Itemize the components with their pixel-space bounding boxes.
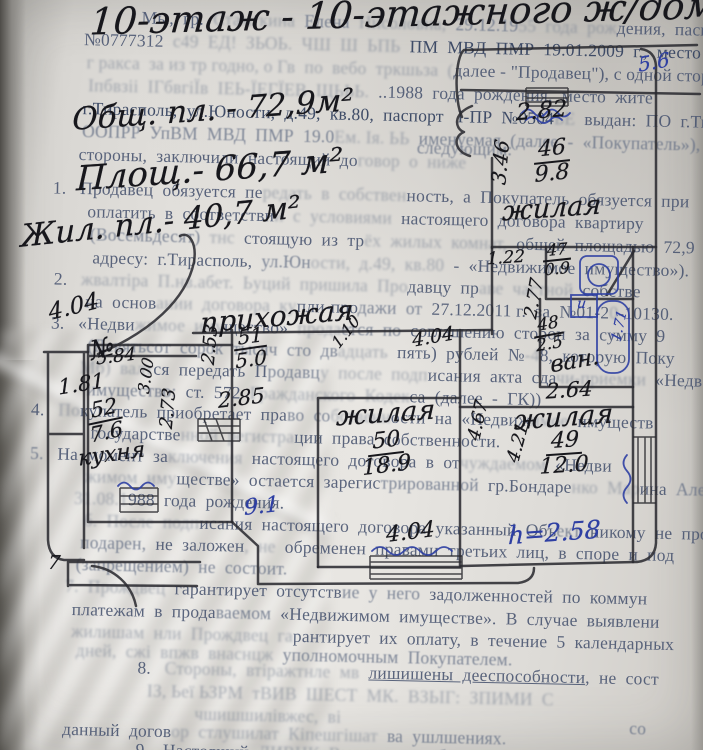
handwritten-annotation: прихожая [200,293,354,340]
handwritten-annotation: Общ. пл. - 72,9м² [72,82,355,138]
handwritten-annotation: 10-этаж - 10-этажного ж/дома [88,0,703,44]
document-photo: Мы, гр. Стамгкина Елена Нисоловна, 29.12… [0,0,703,750]
handwritten-annotation: Жил. пл.- 40,7 м² [21,189,301,255]
handwritten-annotation: Площ.- 66,7 м² [76,141,344,200]
handwriting-layer: 10-этаж - 10-этажного ж/домаОбщ. пл. - 7… [0,0,703,750]
handwritten-annotation: № [88,331,116,367]
